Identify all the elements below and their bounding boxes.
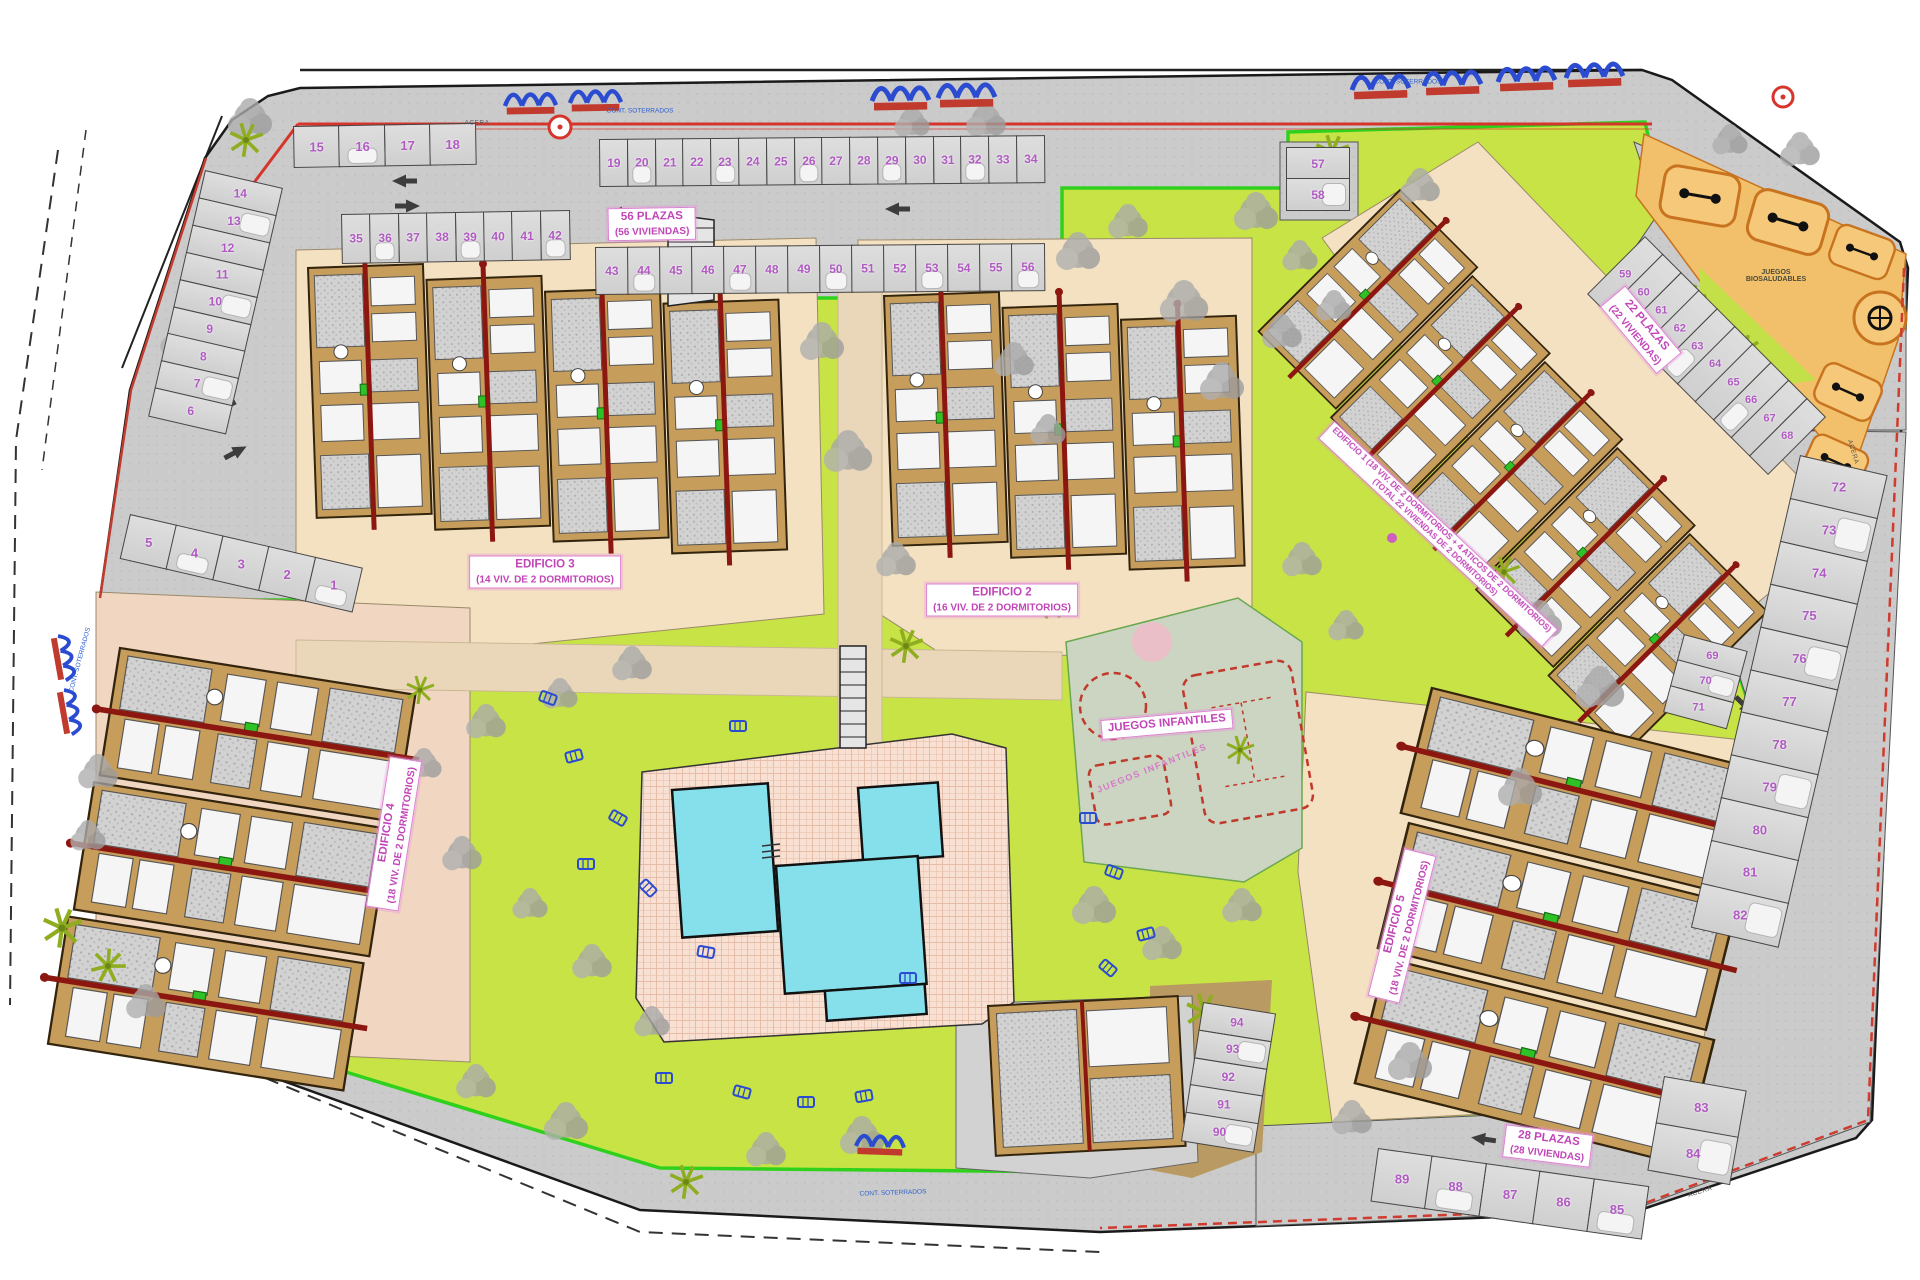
parking-stall-18: 18 [429, 123, 477, 166]
sidewalk-label-1: ACERA [465, 120, 490, 127]
parking-stall-20: 20 [627, 139, 657, 187]
edificio-3-label: EDIFICIO 3 (14 VIV. DE 2 DORMITORIOS) [469, 555, 621, 588]
parking-stall-58: 58 [1286, 178, 1350, 211]
parking-stall-57: 57 [1286, 147, 1350, 180]
edificio-2-line2: (16 VIV. DE 2 DORMITORIOS) [933, 601, 1071, 615]
parking-stall-48: 48 [755, 245, 789, 293]
parking-stall-22: 22 [682, 138, 712, 186]
parking-group-row35_42: 3536373839404142 [341, 210, 569, 262]
parking-group-row19_34: 19202122232425262728293031323334 [599, 135, 1044, 185]
tree-icon [1780, 132, 1820, 166]
clubhouse-building [988, 996, 1186, 1156]
parking-stall-28: 28 [849, 137, 879, 185]
parking-stall-40: 40 [483, 211, 514, 262]
parking-stall-21: 21 [655, 138, 685, 186]
parking-group-right83_84: 8384 [1648, 1076, 1746, 1184]
zone-top-parking-label: 56 PLAZAS (56 VIVIENDAS) [607, 207, 696, 242]
parking-stall-51: 51 [851, 244, 885, 292]
parking-stall-85: 85 [1586, 1178, 1649, 1239]
parking-stall-55: 55 [979, 243, 1013, 291]
parking-stall-42: 42 [540, 210, 571, 261]
parking-stall-44: 44 [627, 246, 661, 294]
parking-stall-17: 17 [384, 124, 432, 167]
parking-stall-38: 38 [426, 212, 457, 263]
pool-area [636, 734, 1014, 1042]
site-plan: 56 PLAZAS (56 VIVIENDAS) 22 PLAZAS (22 V… [0, 0, 1920, 1280]
parking-stall-29: 29 [877, 136, 907, 184]
parking-stall-50: 50 [819, 245, 853, 293]
parking-stall-53: 53 [915, 244, 949, 292]
zone-top-line1: 56 PLAZAS [621, 210, 683, 223]
parking-stall-34: 34 [1016, 135, 1046, 183]
parking-group-col57_58: 5758 [1286, 147, 1348, 210]
parking-stall-88: 88 [1424, 1156, 1487, 1217]
parking-stall-15: 15 [293, 125, 341, 168]
edificio-2-label: EDIFICIO 2 (16 VIV. DE 2 DORMITORIOS) [926, 583, 1078, 616]
zone-top-line2: (56 VIVIENDAS) [615, 224, 690, 239]
roundabout-station [1854, 292, 1906, 344]
parking-stall-27: 27 [821, 137, 851, 185]
pool-kids [858, 782, 943, 861]
parking-stall-23: 23 [710, 138, 740, 186]
parking-stall-30: 30 [905, 136, 935, 184]
parking-stall-86: 86 [1532, 1171, 1595, 1232]
biosaludables-label: JUEGOS BIOSALUDABLES [1737, 269, 1815, 283]
edificio-3-line2: (14 VIV. DE 2 DORMITORIOS) [476, 573, 614, 587]
parking-stall-37: 37 [398, 212, 429, 263]
pool-main [672, 783, 778, 937]
parking-stall-33: 33 [988, 135, 1018, 183]
edificio-2-line1: EDIFICIO 2 [972, 586, 1031, 598]
containers-label-1: CONT. SOTERRADOS [607, 108, 674, 115]
parking-stall-49: 49 [787, 245, 821, 293]
edificio-3-line1: EDIFICIO 3 [515, 558, 574, 570]
footbridge [840, 646, 866, 748]
parking-stall-31: 31 [933, 136, 963, 184]
parking-stall-41: 41 [511, 211, 542, 262]
parking-group-top1518: 15161718 [293, 123, 475, 167]
parking-stall-25: 25 [766, 137, 796, 185]
parking-stall-46: 46 [691, 246, 725, 294]
parking-stall-54: 54 [947, 244, 981, 292]
parking-stall-24: 24 [738, 138, 768, 186]
parking-stall-52: 52 [883, 244, 917, 292]
parking-stall-89: 89 [1370, 1148, 1433, 1209]
parking-stall-47: 47 [723, 246, 757, 294]
parking-stall-39: 39 [455, 211, 486, 262]
parking-stall-36: 36 [369, 213, 400, 264]
containers-label-2: CONT. SOTERRADOS [1375, 79, 1442, 86]
playground-area [1066, 598, 1315, 882]
parking-stall-35: 35 [341, 213, 372, 264]
parking-stall-16: 16 [338, 124, 386, 167]
parking-stall-19: 19 [599, 139, 629, 187]
parking-stall-45: 45 [659, 246, 693, 294]
parking-stall-26: 26 [794, 137, 824, 185]
parking-stall-56: 56 [1011, 243, 1045, 291]
parking-stall-43: 43 [595, 247, 629, 295]
bike-rack-icon [57, 688, 82, 735]
parking-stall-32: 32 [960, 136, 990, 184]
parking-group-row43_56: 4344454647484950515253545556 [595, 243, 1043, 293]
site-plan-drawing [0, 0, 1920, 1280]
parking-stall-87: 87 [1478, 1163, 1541, 1224]
